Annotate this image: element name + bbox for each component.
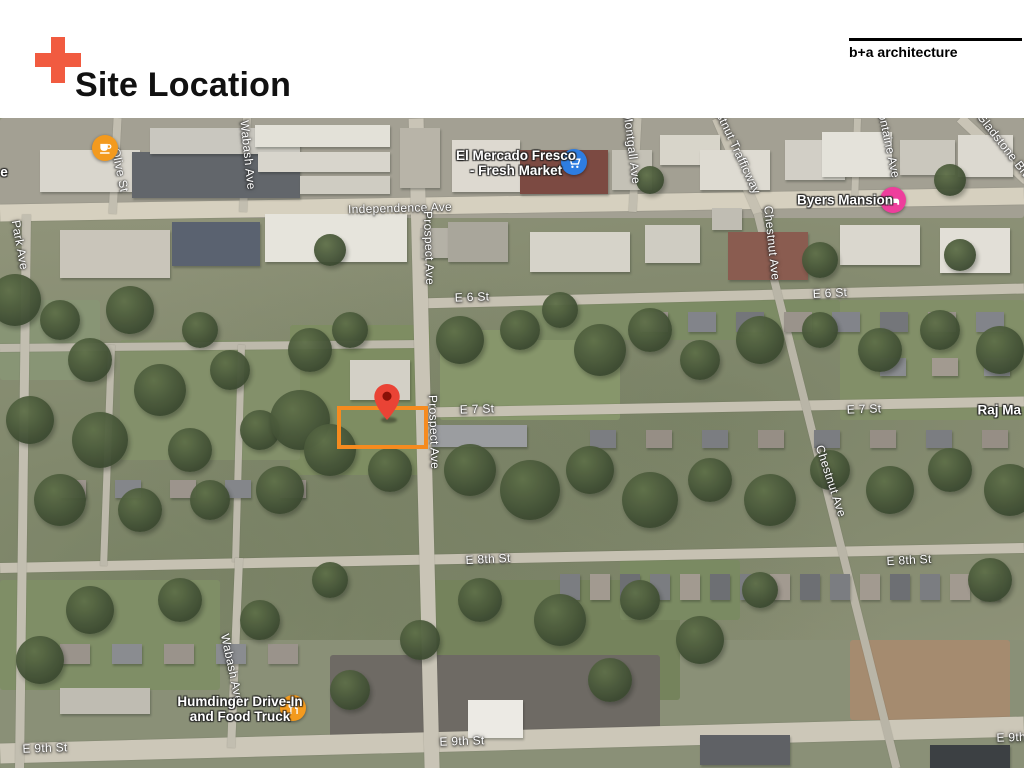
el-mercado-fresco-label: El Mercado Fresco- Fresh Market (456, 149, 576, 179)
map-tree (976, 326, 1024, 374)
map-tree (928, 448, 972, 492)
map-tree (400, 620, 440, 660)
map-building (172, 222, 260, 266)
street-label: E 8th St (465, 551, 511, 567)
map-tree (736, 316, 784, 364)
map-tree (500, 310, 540, 350)
map-house (688, 312, 716, 332)
map-tree (676, 616, 724, 664)
map-house (646, 430, 672, 448)
map-building (645, 225, 700, 263)
map-tree (240, 600, 280, 640)
map-house (890, 574, 910, 600)
map-tree (182, 312, 218, 348)
map-tree (802, 312, 838, 348)
map-building (448, 222, 508, 262)
map-house (590, 430, 616, 448)
map-tree (66, 586, 114, 634)
map-building (700, 735, 790, 765)
map-building (930, 745, 1010, 768)
map-tree (40, 300, 80, 340)
map-house (860, 574, 880, 600)
map-house (870, 430, 896, 448)
map-tree (288, 328, 332, 372)
map-house (112, 644, 142, 664)
page-title: Site Location (75, 66, 291, 105)
brand-rule (849, 38, 1022, 41)
map-house (800, 574, 820, 600)
map-tree (72, 412, 128, 468)
street-label: E 9th St (439, 733, 485, 749)
street-label: E 9th St (996, 729, 1024, 745)
map-building (400, 128, 440, 188)
byers-mansion-label: Byers Mansion (797, 194, 893, 209)
map-tree (444, 444, 496, 496)
map-tree (368, 448, 412, 492)
map-tree (534, 594, 586, 646)
map-tree (210, 350, 250, 390)
map-house (710, 574, 730, 600)
map-tree (118, 488, 162, 532)
map-house (590, 574, 610, 600)
map-tree (256, 466, 304, 514)
map-house (164, 644, 194, 664)
map-tree (574, 324, 626, 376)
site-location-aerial-map: Independence AveE 6 StE 6 StE 7 StE 7 St… (0, 118, 1024, 768)
map-house (680, 574, 700, 600)
map-tree (500, 460, 560, 520)
street-label: Prospect Ave (421, 211, 438, 286)
map-tree (312, 562, 348, 598)
map-building (712, 208, 742, 230)
map-building (255, 125, 390, 147)
map-house (830, 574, 850, 600)
humdinger-drive-in-label: Humdinger Drive-Inand Food Truck (177, 695, 302, 725)
map-house (950, 574, 970, 600)
map-tree (628, 308, 672, 352)
map-tree (158, 578, 202, 622)
map-tree (34, 474, 86, 526)
slide-header: Site Location b+a architecture (0, 0, 1024, 118)
map-building (60, 230, 170, 278)
map-tree (314, 234, 346, 266)
clipped-place-label: e (0, 166, 8, 181)
map-tree (190, 480, 230, 520)
street-label: E 7 St (847, 401, 882, 416)
map-tree (920, 310, 960, 350)
map-tree (332, 312, 368, 348)
slide: Site Location b+a architecture Independe… (0, 0, 1024, 768)
street-label: Prospect Ave (426, 395, 443, 470)
map-tree (436, 316, 484, 364)
map-house (702, 430, 728, 448)
map-house (758, 430, 784, 448)
map-tree (934, 164, 966, 196)
map-tree (858, 328, 902, 372)
map-tree (106, 286, 154, 334)
street-label: E 8th St (886, 552, 932, 568)
map-road (0, 543, 1024, 573)
map-building (840, 225, 920, 265)
map-building (258, 152, 390, 172)
street-label: Independence Ave (348, 200, 452, 217)
map-building (468, 700, 523, 738)
map-tree (984, 464, 1024, 516)
map-tree (866, 466, 914, 514)
site-pin-icon (374, 384, 400, 425)
raj-ma-label: Raj Ma H (977, 404, 1024, 419)
map-house (268, 644, 298, 664)
map-tree (68, 338, 112, 382)
map-tree (744, 474, 796, 526)
map-tree (944, 239, 976, 271)
street-label: E 7 St (460, 401, 495, 416)
plus-logo-horizontal-bar (35, 53, 81, 67)
map-tree (968, 558, 1012, 602)
map-tree (588, 658, 632, 702)
map-tree (458, 578, 502, 622)
map-tree (566, 446, 614, 494)
map-tree (742, 572, 778, 608)
map-house (920, 574, 940, 600)
map-tree (168, 428, 212, 472)
map-tree (16, 636, 64, 684)
map-tree (620, 580, 660, 620)
map-building (300, 176, 390, 194)
cafe-marker-icon (92, 135, 118, 161)
map-tree (622, 472, 678, 528)
map-building (530, 232, 630, 272)
map-tree (542, 292, 578, 328)
map-building (60, 688, 150, 714)
map-house (926, 430, 952, 448)
street-label: E 9th St (22, 740, 68, 756)
street-label: E 6 St (455, 289, 490, 304)
map-house (60, 644, 90, 664)
map-building (432, 425, 527, 447)
map-tree (680, 340, 720, 380)
street-label: E 6 St (812, 285, 847, 301)
map-tree (688, 458, 732, 502)
map-tree (330, 670, 370, 710)
map-tree (134, 364, 186, 416)
map-tree (802, 242, 838, 278)
map-house (982, 430, 1008, 448)
map-house (932, 358, 958, 376)
map-tree (6, 396, 54, 444)
brand-logo-text: b+a architecture (849, 44, 958, 60)
